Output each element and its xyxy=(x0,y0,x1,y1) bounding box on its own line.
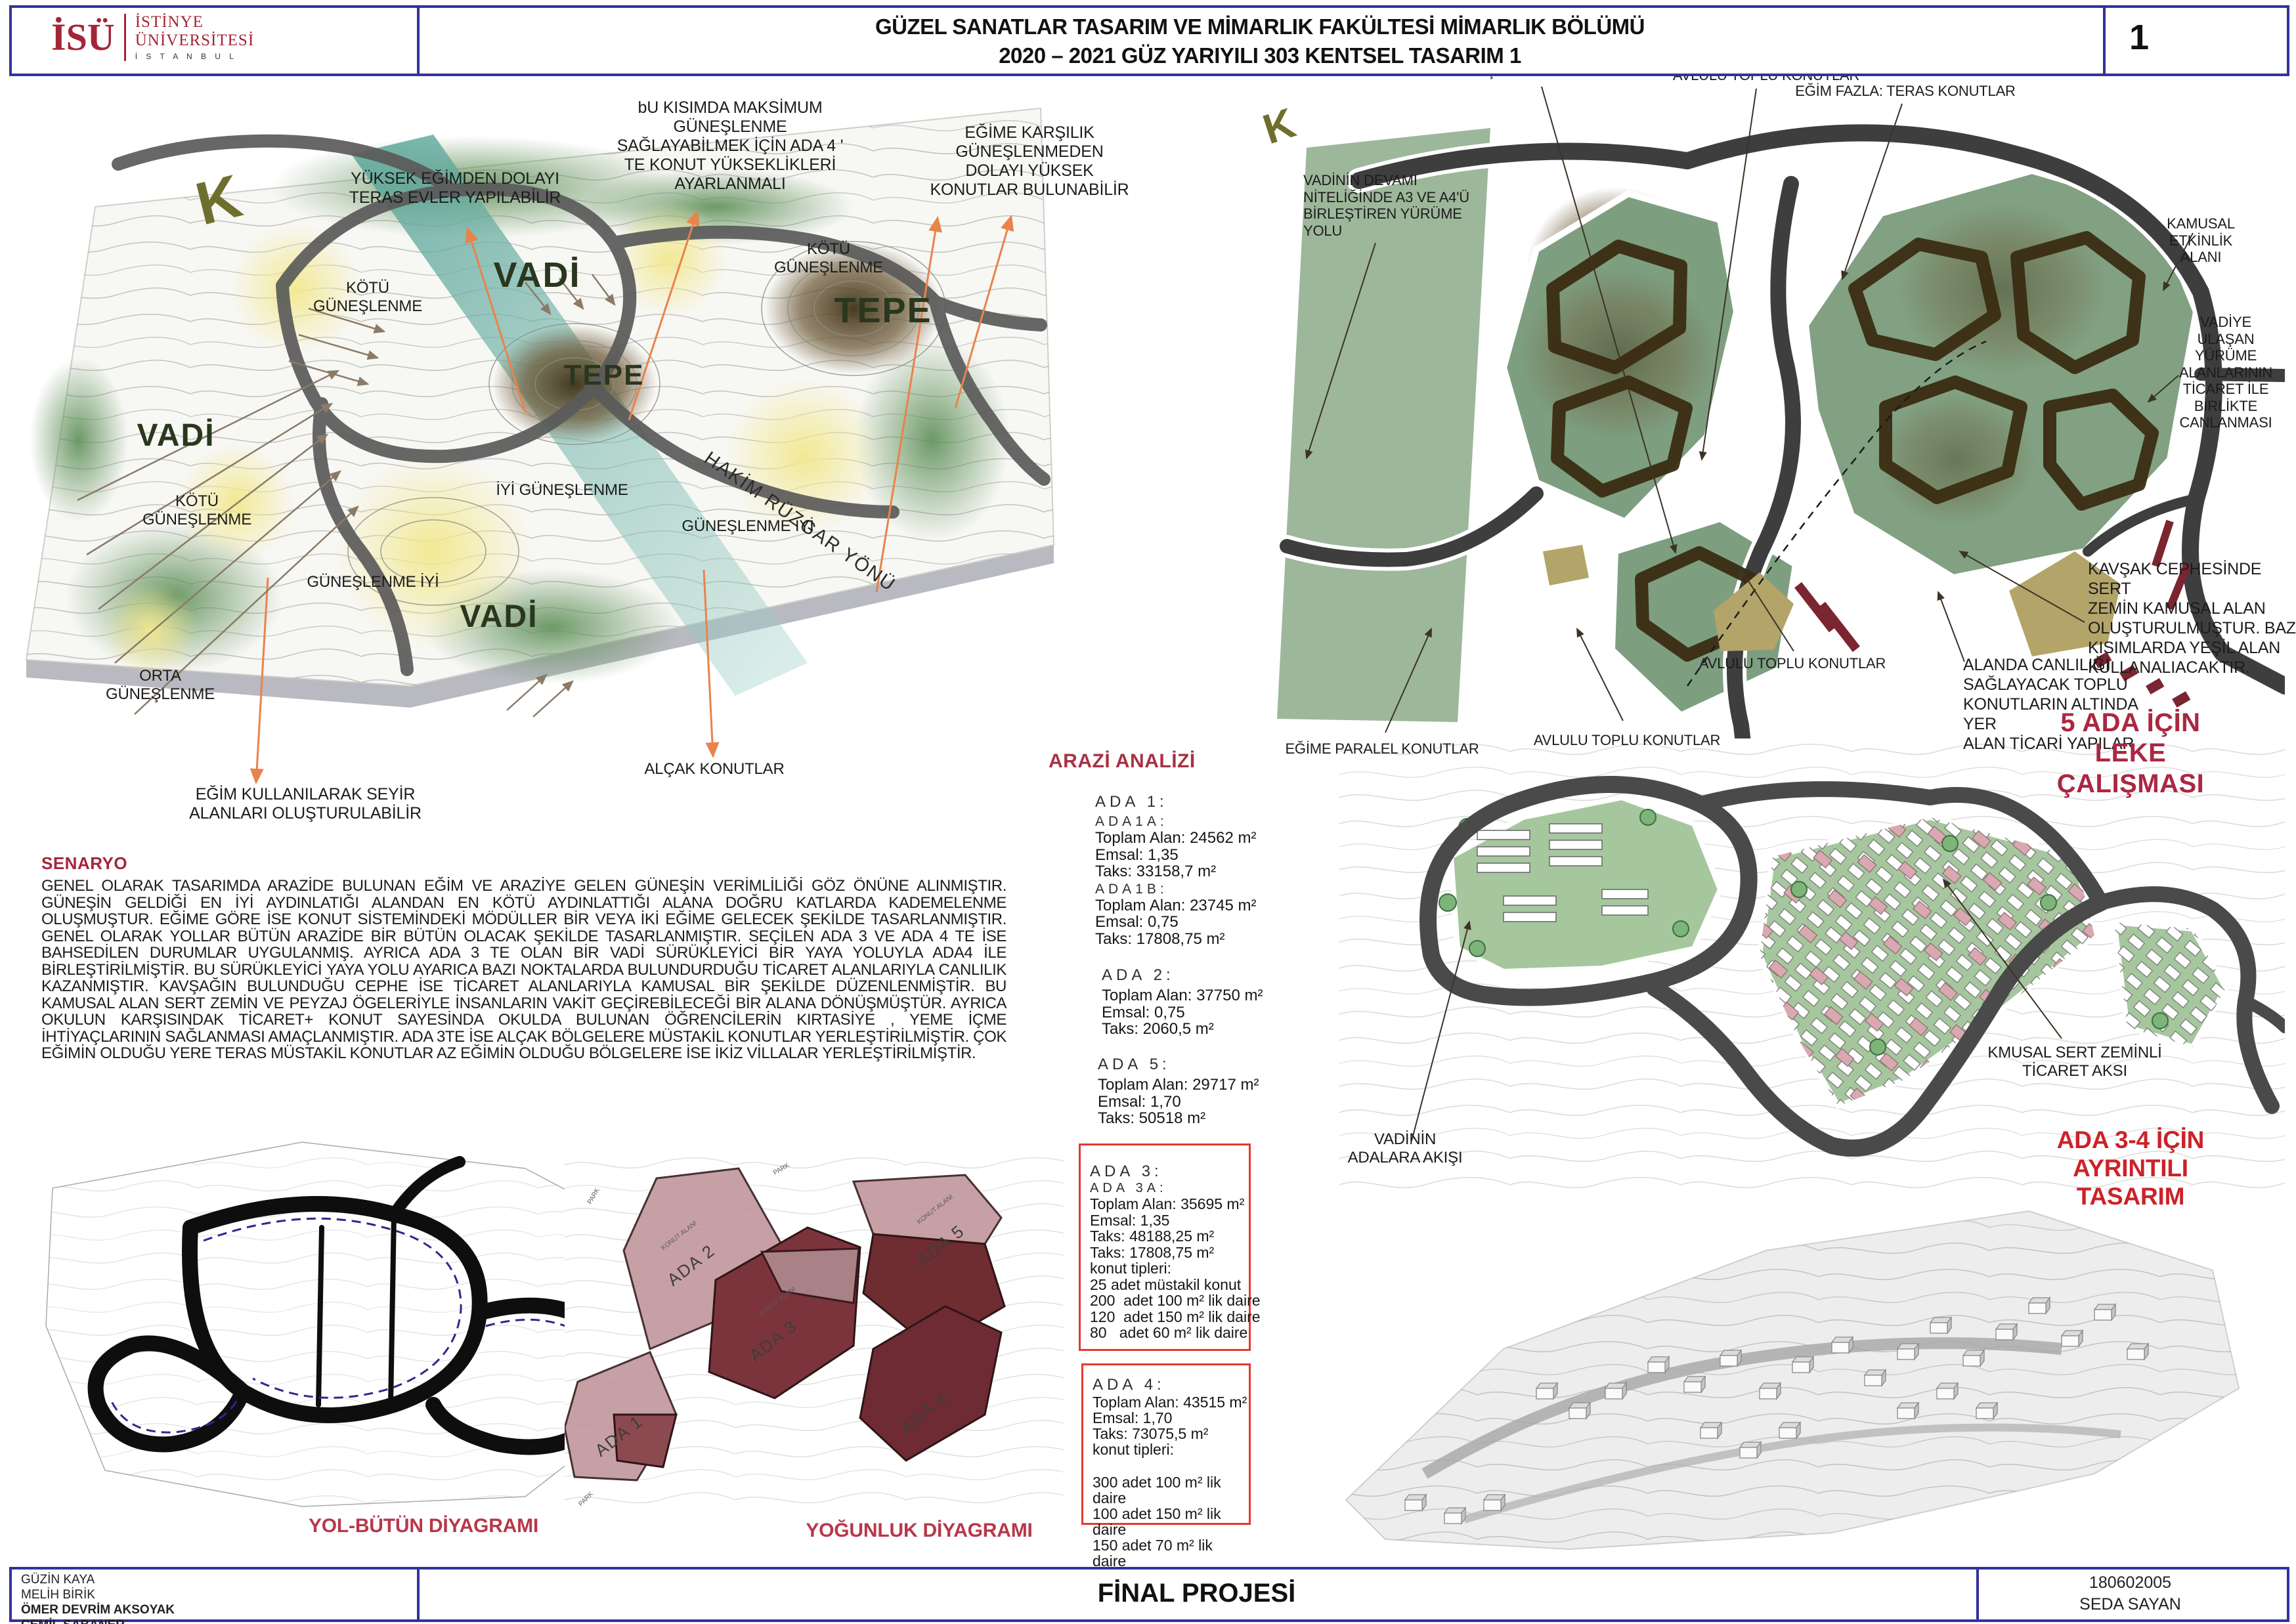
annotation-kmusal-ticaret: KMUSAL SERT ZEMİNLİ TİCARET AKSI xyxy=(1987,1044,2161,1080)
ada3-konut-3: 120 adet 150 m² lik daire xyxy=(1090,1309,1249,1325)
ada3-konut-2: 200 adet 100 m² lik daire xyxy=(1090,1293,1249,1309)
ada34-detail-title: ADA 3-4 İÇİN AYRINTILI TASARIM xyxy=(2048,1126,2213,1211)
ada3-konut-4: 80 adet 60 m² lik daire xyxy=(1090,1325,1249,1341)
ada2-taks: Taks: 2060,5 m² xyxy=(1102,1021,1263,1038)
annotation-vadinin-akisi: VADİNİN ADALARA AKIŞI xyxy=(1348,1130,1463,1167)
ada4-konut-tipleri: konut tipleri: xyxy=(1093,1442,1249,1457)
ada1a-taks: Taks: 33158,7 m² xyxy=(1095,863,1256,880)
map-label-vadi-left: VADİ xyxy=(137,417,215,454)
map-label-guneslenme-iyi-mid: GÜNEŞLENME İYİ xyxy=(682,517,813,536)
annotation-kamusal-etkinlik: KAMUSAL ETKİNLİK ALANI xyxy=(2154,215,2249,266)
logo-line3: İ S T A N B U L xyxy=(135,52,254,61)
ada5-taks: Taks: 50518 m² xyxy=(1098,1110,1259,1127)
university-logo: İSÜ İSTİNYE ÜNİVERSİTESİ İ S T A N B U L xyxy=(51,13,254,61)
annotation-egime-paralel: EĞİME PARALEL KONUTLAR xyxy=(1285,740,1479,758)
ada2-data-block: ADA 2: Toplam Alan: 37750 m² Emsal: 0,75… xyxy=(1102,966,1263,1038)
map-label-guneslenme-iyi-left: GÜNEŞLENME İYİ xyxy=(307,573,439,591)
header-divider-2 xyxy=(2103,8,2106,74)
ada5-emsal: Emsal: 1,70 xyxy=(1098,1094,1259,1111)
ada3-emsal: Emsal: 1,35 xyxy=(1090,1212,1249,1229)
map-label-vadi-bottom: VADİ xyxy=(460,599,538,635)
leke-calismasi-title: 5 ADA İÇİN LEKE ÇALIŞMASI xyxy=(2048,708,2213,799)
annotation-alcak-konutlar: ALÇAK KONUTLAR xyxy=(644,760,784,779)
ada3-alan: Toplam Alan: 35695 m² xyxy=(1090,1196,1249,1212)
yogunluk-caption: YOĞUNLUK DİYAGRAMI xyxy=(806,1520,1032,1543)
ada5-data-block: ADA 5: Toplam Alan: 29717 m² Emsal: 1,70… xyxy=(1098,1056,1259,1127)
arazi-analizi-heading: ARAZİ ANALİZİ xyxy=(1049,750,1196,773)
project-title: FİNAL PROJESİ xyxy=(417,1579,1976,1608)
ada3-data-box: ADA 3: ADA 3A: Toplam Alan: 35695 m² Ems… xyxy=(1079,1143,1251,1351)
yol-butun-caption: YOL-BÜTÜN DİYAGRAMI xyxy=(309,1515,538,1538)
senaryo-body: GENEL OLARAK TASARIMDA ARAZİDE BULUNAN E… xyxy=(41,878,1007,1062)
title-line2: 2020 – 2021 GÜZ YARIYILI 303 KENTSEL TAS… xyxy=(417,43,2103,68)
ada1a-alan: Toplam Alan: 24562 m² xyxy=(1095,830,1256,847)
logo-line2: ÜNİVERSİTESİ xyxy=(135,32,254,50)
ada3-konut-tipleri: konut tipleri: xyxy=(1090,1260,1249,1277)
ada4-emsal: Emsal: 1,70 xyxy=(1093,1410,1249,1426)
ada1-title: ADA 1: xyxy=(1095,793,1256,811)
board-title: GÜZEL SANATLAR TASARIM VE MİMARLIK FAKÜL… xyxy=(417,14,2103,68)
annotation-vadiye-ulasan: VADİYE ULAŞAN YÜRÜME ALANLARININ TİCARET… xyxy=(2179,314,2272,431)
footer-bar: GÜZİN KAYA MELİH BİRİK ÖMER DEVRİM AKSOY… xyxy=(9,1567,2289,1622)
senaryo-heading: SENARYO xyxy=(41,853,127,873)
page-number: 1 xyxy=(2129,17,2149,58)
density-diagram: ADA 2 ADA 3 ADA 5 ADA 4 ADA 1 KONUT ALAN… xyxy=(565,1152,1064,1516)
map-label-kotu-guneslenme-topright: KÖTÜ GÜNEŞLENME xyxy=(774,240,883,277)
annotation-egim-fazla: EĞİM FAZLA: TERAS KONUTLAR xyxy=(1795,83,2015,100)
annotation-teras-evler: YÜKSEK EĞİMDEN DOLAYI TERAS EVLER YAPILA… xyxy=(349,169,561,207)
map-label-kotu-guneslenme-left: KÖTÜ GÜNEŞLENME xyxy=(142,492,251,529)
student-number: 180602005 xyxy=(1976,1573,2284,1592)
public-area-khaki xyxy=(1543,545,1589,586)
ada5-title: ADA 5: xyxy=(1098,1056,1259,1074)
annotation-avlulu-bottom: AVLULU TOPLU KONUTLAR xyxy=(1534,732,1720,749)
ada3-taks2: Taks: 17808,75 m² xyxy=(1090,1245,1249,1261)
ada1-data-block: ADA 1: ADA1A: Toplam Alan: 24562 m² Emsa… xyxy=(1095,793,1256,947)
ada1b-title: ADA1B: xyxy=(1095,882,1256,897)
ada3-title: ADA 3: xyxy=(1090,1163,1249,1181)
ada1a-title: ADA1A: xyxy=(1095,814,1256,830)
team-names: GÜZİN KAYA MELİH BİRİK ÖMER DEVRİM AKSOY… xyxy=(21,1572,175,1624)
ada34-detailed-plan xyxy=(1339,738,2285,1191)
map-label-tepe-right: TEPE xyxy=(834,290,932,331)
annotation-egime-karsilik: EĞİME KARŞILIK GÜNEŞLENMEDEN DOLAYI YÜKS… xyxy=(930,123,1129,200)
project-board: İSÜ İSTİNYE ÜNİVERSİTESİ İ S T A N B U L… xyxy=(0,0,2296,1624)
team-name: GÜZİN KAYA xyxy=(21,1572,175,1587)
ada1b-emsal: Emsal: 0,75 xyxy=(1095,914,1256,931)
map-label-kotu-guneslenme-topleft: KÖTÜ GÜNEŞLENME xyxy=(313,279,422,316)
annotation-maksimum-guneslenme: bU KISIMDA MAKSİMUM GÜNEŞLENME SAĞLAYABİ… xyxy=(617,98,844,194)
ada5-alan: Toplam Alan: 29717 m² xyxy=(1098,1077,1259,1094)
ada4-konut-3: 150 adet 70 m² lik daire xyxy=(1093,1537,1249,1569)
title-line1: GÜZEL SANATLAR TASARIM VE MİMARLIK FAKÜL… xyxy=(417,14,2103,39)
annotation-vadinin-devami: VADİNİN DEVAMI NİTELİĞİNDE A3 VE A4'Ü Bİ… xyxy=(1303,172,1487,239)
map-label-iyi-guneslenme: İYİ GÜNEŞLENME xyxy=(496,481,628,500)
annotation-seyir-alanlari: EĞİM KULLANILARAK SEYİR ALANLARI OLUŞTUR… xyxy=(189,785,422,823)
logo-acronym: İSÜ xyxy=(51,15,115,59)
student-name: SEDA SAYAN xyxy=(1976,1595,2284,1614)
annotation-avlulu-right: AVLULU TOPLU KONUTLAR xyxy=(1699,655,1886,672)
logo-separator xyxy=(124,14,126,61)
ada1a-emsal: Emsal: 1,35 xyxy=(1095,847,1256,864)
massing-3d-render xyxy=(1307,1191,2259,1559)
sun-area xyxy=(104,583,198,677)
ada2-emsal: Emsal: 0,75 xyxy=(1102,1004,1263,1021)
logo-line1: İSTİNYE xyxy=(135,13,254,32)
header-bar: İSÜ İSTİNYE ÜNİVERSİTESİ İ S T A N B U L… xyxy=(9,5,2289,76)
team-name: ÖMER DEVRİM AKSOYAK xyxy=(21,1602,175,1617)
ada3-konut-1: 25 adet müstakil konut xyxy=(1090,1277,1249,1293)
ada4-konut-2: 100 adet 150 m² lik daire xyxy=(1093,1506,1249,1537)
ada4-data-box: ADA 4: Toplam Alan: 43515 m² Emsal: 1,70… xyxy=(1081,1363,1251,1525)
ada2-title: ADA 2: xyxy=(1102,966,1263,985)
ada4-alan: Toplam Alan: 43515 m² xyxy=(1093,1394,1249,1410)
ada1b-taks: Taks: 17808,75 m² xyxy=(1095,931,1256,948)
ada4-title: ADA 4: xyxy=(1093,1376,1249,1394)
ada3a-title: ADA 3A: xyxy=(1090,1181,1249,1196)
student-info: 180602005 SEDA SAYAN xyxy=(1976,1573,2284,1614)
team-name: CEMİL SABANER xyxy=(21,1617,175,1624)
ada3-taks1: Taks: 48188,25 m² xyxy=(1090,1228,1249,1245)
ada1b-alan: Toplam Alan: 23745 m² xyxy=(1095,897,1256,914)
ada4-taks: Taks: 73075,5 m² xyxy=(1093,1426,1249,1442)
team-name: MELİH BİRİK xyxy=(21,1587,175,1602)
map-label-vadi-top: VADİ xyxy=(493,255,580,296)
green-area xyxy=(30,358,128,522)
ada4-konut-1: 300 adet 100 m² lik daire xyxy=(1093,1474,1249,1506)
ada2-alan: Toplam Alan: 37750 m² xyxy=(1102,987,1263,1004)
map-label-orta-guneslenme: ORTA GÜNEŞLENME xyxy=(106,667,215,704)
map-label-tepe-center: TEPE xyxy=(564,358,645,392)
